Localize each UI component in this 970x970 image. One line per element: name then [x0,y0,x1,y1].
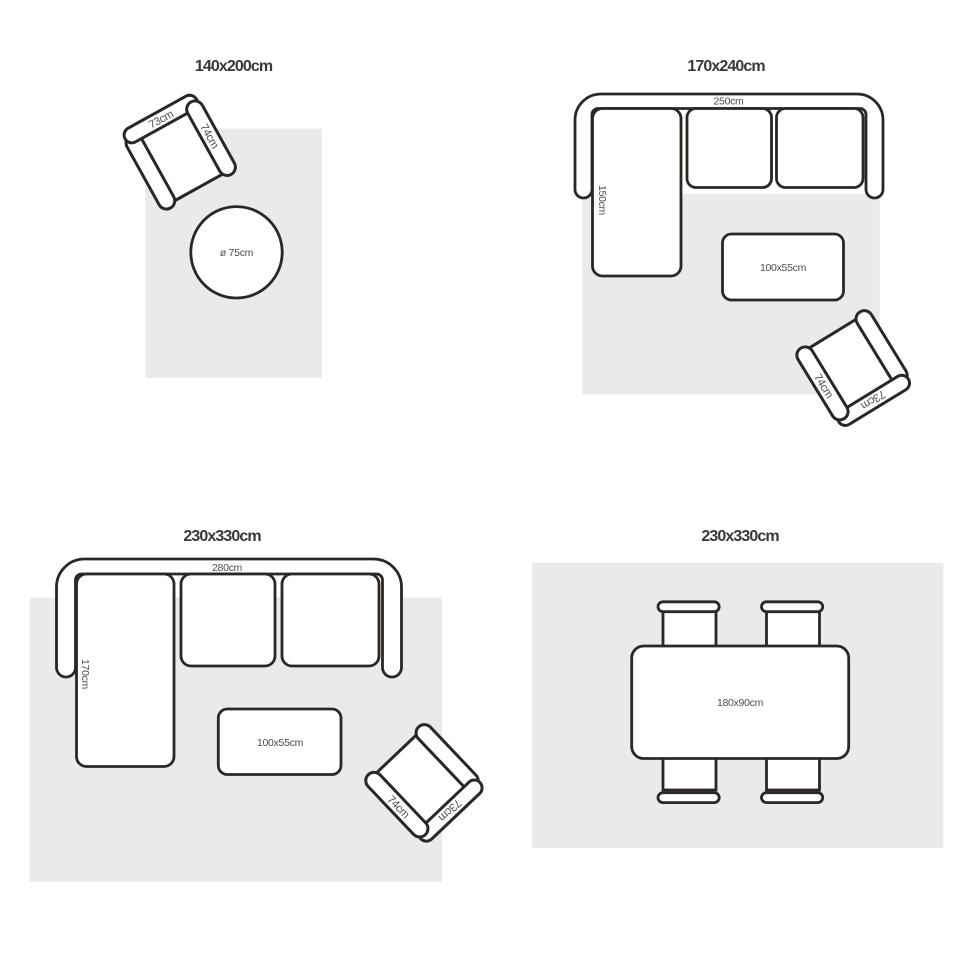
svg-text:150cm: 150cm [596,185,608,216]
svg-text:250cm: 250cm [713,96,744,108]
svg-text:170x240cm: 170x240cm [687,58,765,75]
svg-text:280cm: 280cm [212,562,243,574]
svg-text:170cm: 170cm [79,659,91,690]
svg-text:230x330cm: 230x330cm [183,528,261,545]
svg-text:180x90cm: 180x90cm [717,697,764,709]
svg-text:100x55cm: 100x55cm [760,262,807,274]
svg-text:140x200cm: 140x200cm [195,58,273,75]
svg-text:100x55cm: 100x55cm [257,737,304,749]
svg-text:230x330cm: 230x330cm [701,528,779,545]
svg-text:ø 75cm: ø 75cm [220,247,254,259]
